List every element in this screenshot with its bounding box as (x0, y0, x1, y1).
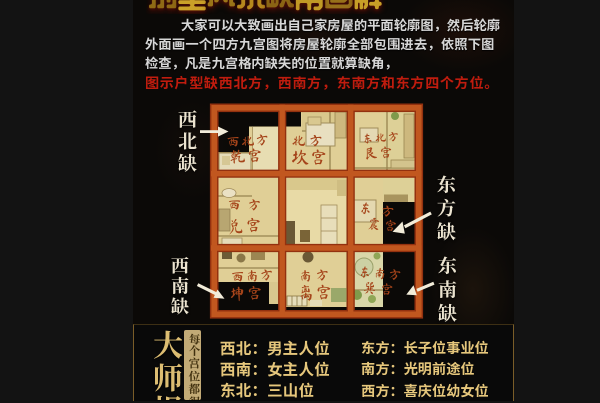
svg-text:艮宫: 艮宫 (364, 144, 395, 160)
svg-text:北方: 北方 (292, 134, 326, 148)
svg-text:兑宫: 兑宫 (226, 215, 264, 235)
svg-text:乾宫: 乾宫 (229, 146, 265, 164)
svg-text:离宫: 离宫 (297, 283, 334, 303)
svg-text:坎宫: 坎宫 (292, 150, 329, 167)
svg-text:南方: 南方 (299, 268, 334, 283)
svg-text:坤宫: 坤宫 (228, 284, 265, 302)
svg-text:巽宫: 巽宫 (363, 280, 399, 296)
svg-text:西方: 西方 (228, 199, 268, 212)
